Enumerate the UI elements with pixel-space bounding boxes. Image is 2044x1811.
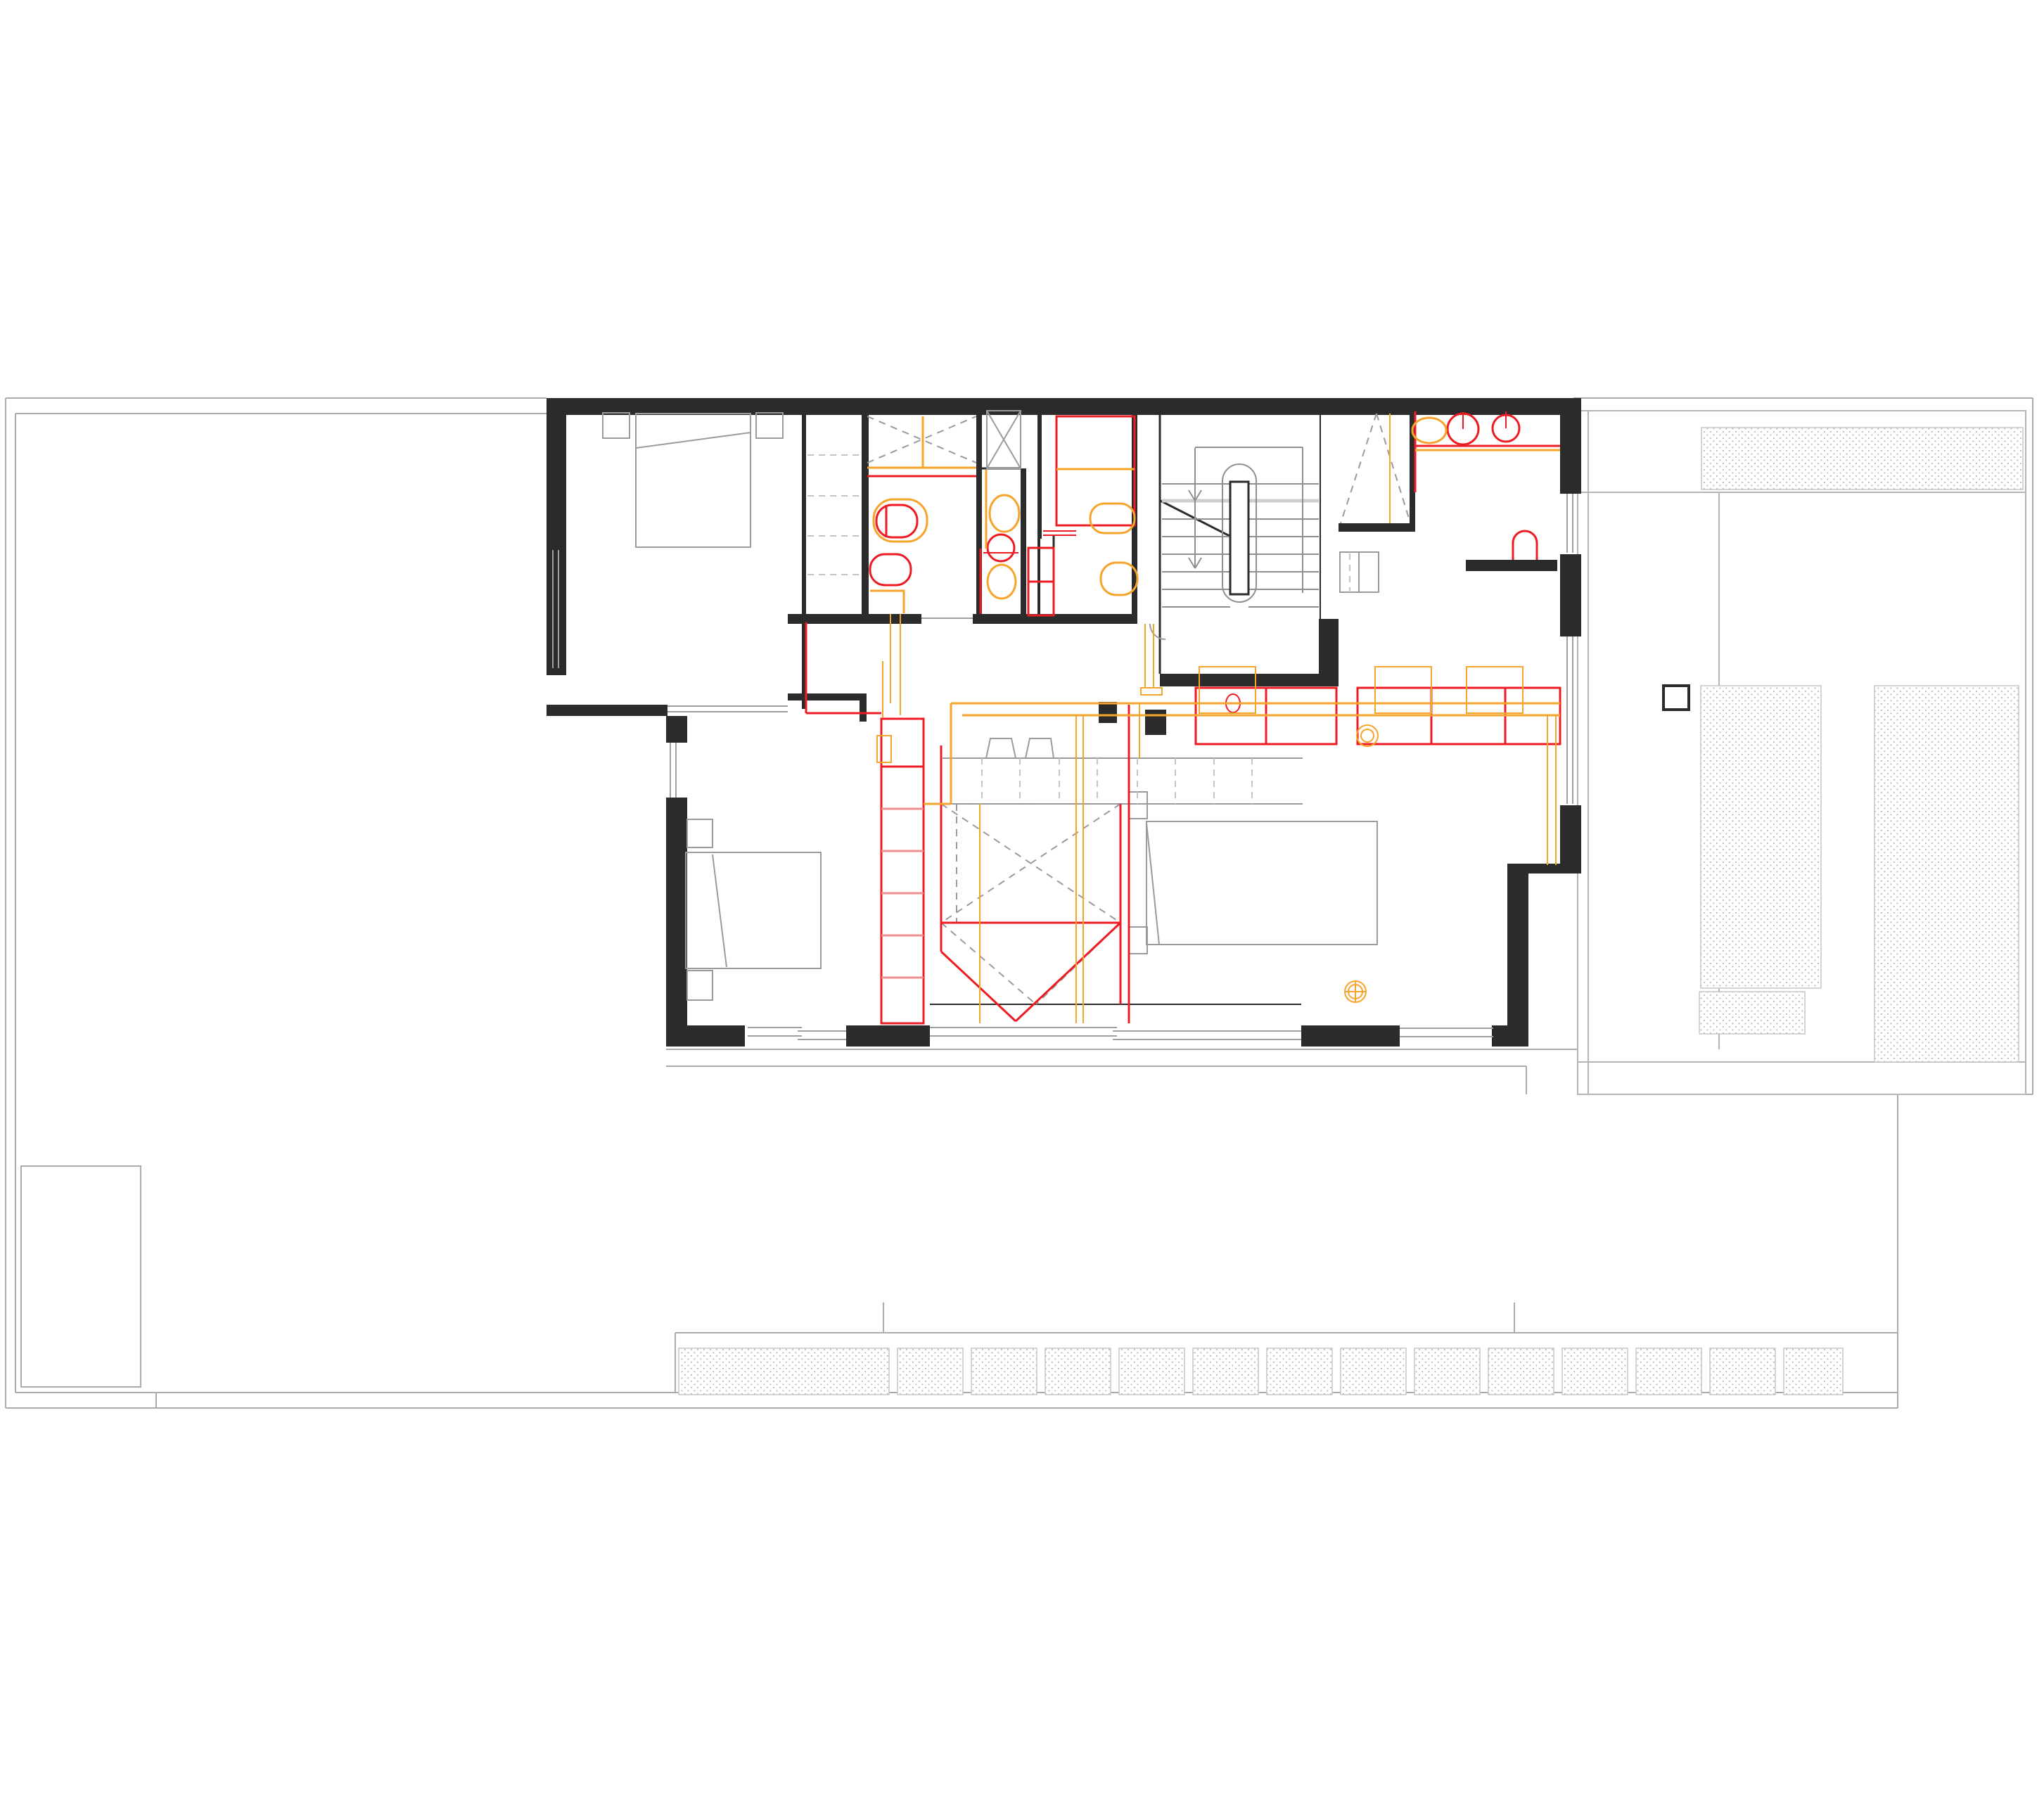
- bed-3: [1146, 821, 1377, 945]
- radiator-arch: [1513, 531, 1537, 560]
- bed-1: [636, 414, 750, 547]
- toilet-icon: [988, 565, 1016, 599]
- layers-root: [6, 398, 2033, 1408]
- interior-walls: [862, 414, 869, 615]
- bed-2-nightstand: [687, 819, 713, 847]
- garden-shed: [21, 1166, 141, 1387]
- wall-north: [547, 398, 1581, 415]
- interior-walls: [1466, 560, 1557, 571]
- column-terrace: [1663, 686, 1689, 710]
- plumbing-orange: [1141, 688, 1162, 695]
- column-corridor: [1145, 710, 1166, 735]
- plumbing-orange: [1467, 667, 1523, 713]
- plumbing-orange: [867, 414, 1560, 1023]
- bidet-icon: [870, 554, 911, 585]
- stool: [986, 738, 1016, 758]
- furniture-gray: [713, 855, 727, 967]
- stairs: [1195, 558, 1201, 568]
- interior-walls: [1319, 619, 1339, 674]
- stair-newel: [1230, 482, 1248, 594]
- plan-sheet: Architectural floor plan — upper level (…: [0, 0, 2044, 1811]
- interior-walls: [788, 614, 921, 624]
- utility-sink: [1090, 504, 1135, 533]
- hatch-right: [1874, 686, 2019, 1062]
- exterior-walls: [666, 716, 687, 743]
- terrace-hatch: [1341, 1348, 1406, 1395]
- terrace-hatch: [1045, 1348, 1111, 1395]
- floor-plan-drawing: Architectural floor plan — upper level (…: [0, 0, 2044, 1811]
- exterior-walls: [1507, 873, 1528, 1047]
- window-sills: [553, 494, 1573, 1039]
- terrace-hatch: [1784, 1348, 1843, 1395]
- furniture-gray: [1146, 823, 1159, 945]
- sink-icon: [990, 495, 1019, 532]
- plumbing-orange: [870, 591, 904, 613]
- plumbing-red: [941, 952, 1016, 1021]
- terrace-hatch: [1119, 1348, 1184, 1395]
- void-dashes: [867, 414, 1410, 1004]
- interior-walls: [1021, 468, 1026, 615]
- bed-2: [686, 852, 821, 968]
- interior-walls: [788, 693, 860, 700]
- interior-walls: [860, 693, 867, 722]
- basin-icon: [1412, 418, 1446, 443]
- terrace-hatch: [1193, 1348, 1258, 1395]
- exterior-walls: [1560, 398, 1581, 494]
- washer-stack: [1056, 416, 1135, 525]
- exterior-walls: [1507, 864, 1581, 873]
- interior-walls: [1037, 411, 1042, 539]
- door-swing-arc: [1150, 624, 1165, 639]
- exterior-walls: [666, 798, 687, 1025]
- interior-walls: [1160, 674, 1339, 686]
- exterior-walls: [1301, 1025, 1400, 1047]
- terrace-hatch: [1562, 1348, 1628, 1395]
- kitchen-appliance: [1199, 667, 1256, 713]
- interior-walls: [1339, 523, 1412, 532]
- terrace-hatch: [1710, 1348, 1775, 1395]
- terrace-hatch: [679, 1348, 889, 1395]
- terrace-hatch: [1488, 1348, 1554, 1395]
- wall-west: [547, 398, 566, 672]
- stairs: [1189, 558, 1195, 568]
- exterior-walls: [846, 1025, 930, 1047]
- exterior-walls: [1560, 805, 1581, 873]
- terrace-hatch: [1414, 1348, 1480, 1395]
- sink-icon: [988, 535, 1014, 561]
- bed-1-headboard: [603, 413, 630, 438]
- hatch-left: [1701, 686, 1821, 988]
- plumbing-orange: [1375, 667, 1431, 713]
- interior-walls: [1037, 539, 1040, 616]
- hatch-left-small: [1699, 992, 1805, 1034]
- closet-dashes: [807, 455, 1350, 804]
- column-corridor-2: [1099, 702, 1117, 723]
- terrace-hatch: [898, 1348, 963, 1395]
- exterior-walls: [666, 1025, 745, 1047]
- plumbing-orange: [1361, 729, 1374, 742]
- stairs: [1162, 447, 1319, 607]
- hatch-strip-top: [1701, 428, 2023, 489]
- stool: [1026, 738, 1054, 758]
- furniture-gray: [687, 971, 713, 1000]
- exterior-walls: [1492, 1025, 1528, 1047]
- interior-walls: [788, 411, 1557, 735]
- hanging-rail-triangle: [1341, 414, 1376, 523]
- terrace-hatch: [971, 1348, 1037, 1395]
- plumbing-red: [1016, 923, 1120, 1021]
- exterior-walls: [547, 398, 1581, 1047]
- toilet-icon: [876, 505, 917, 537]
- furniture-gray: [756, 413, 783, 438]
- void-dashes: [1376, 414, 1410, 520]
- terrace-hatch: [1267, 1348, 1332, 1395]
- furniture-gray: [636, 433, 750, 448]
- terrace-hatch: [1636, 1348, 1701, 1395]
- ladder-rungs: [881, 809, 924, 978]
- plumbing-orange: [877, 736, 891, 762]
- furniture-gray: [1129, 927, 1147, 954]
- exterior-walls: [547, 665, 566, 675]
- exterior-walls: [547, 705, 668, 716]
- exterior-walls: [1560, 554, 1581, 636]
